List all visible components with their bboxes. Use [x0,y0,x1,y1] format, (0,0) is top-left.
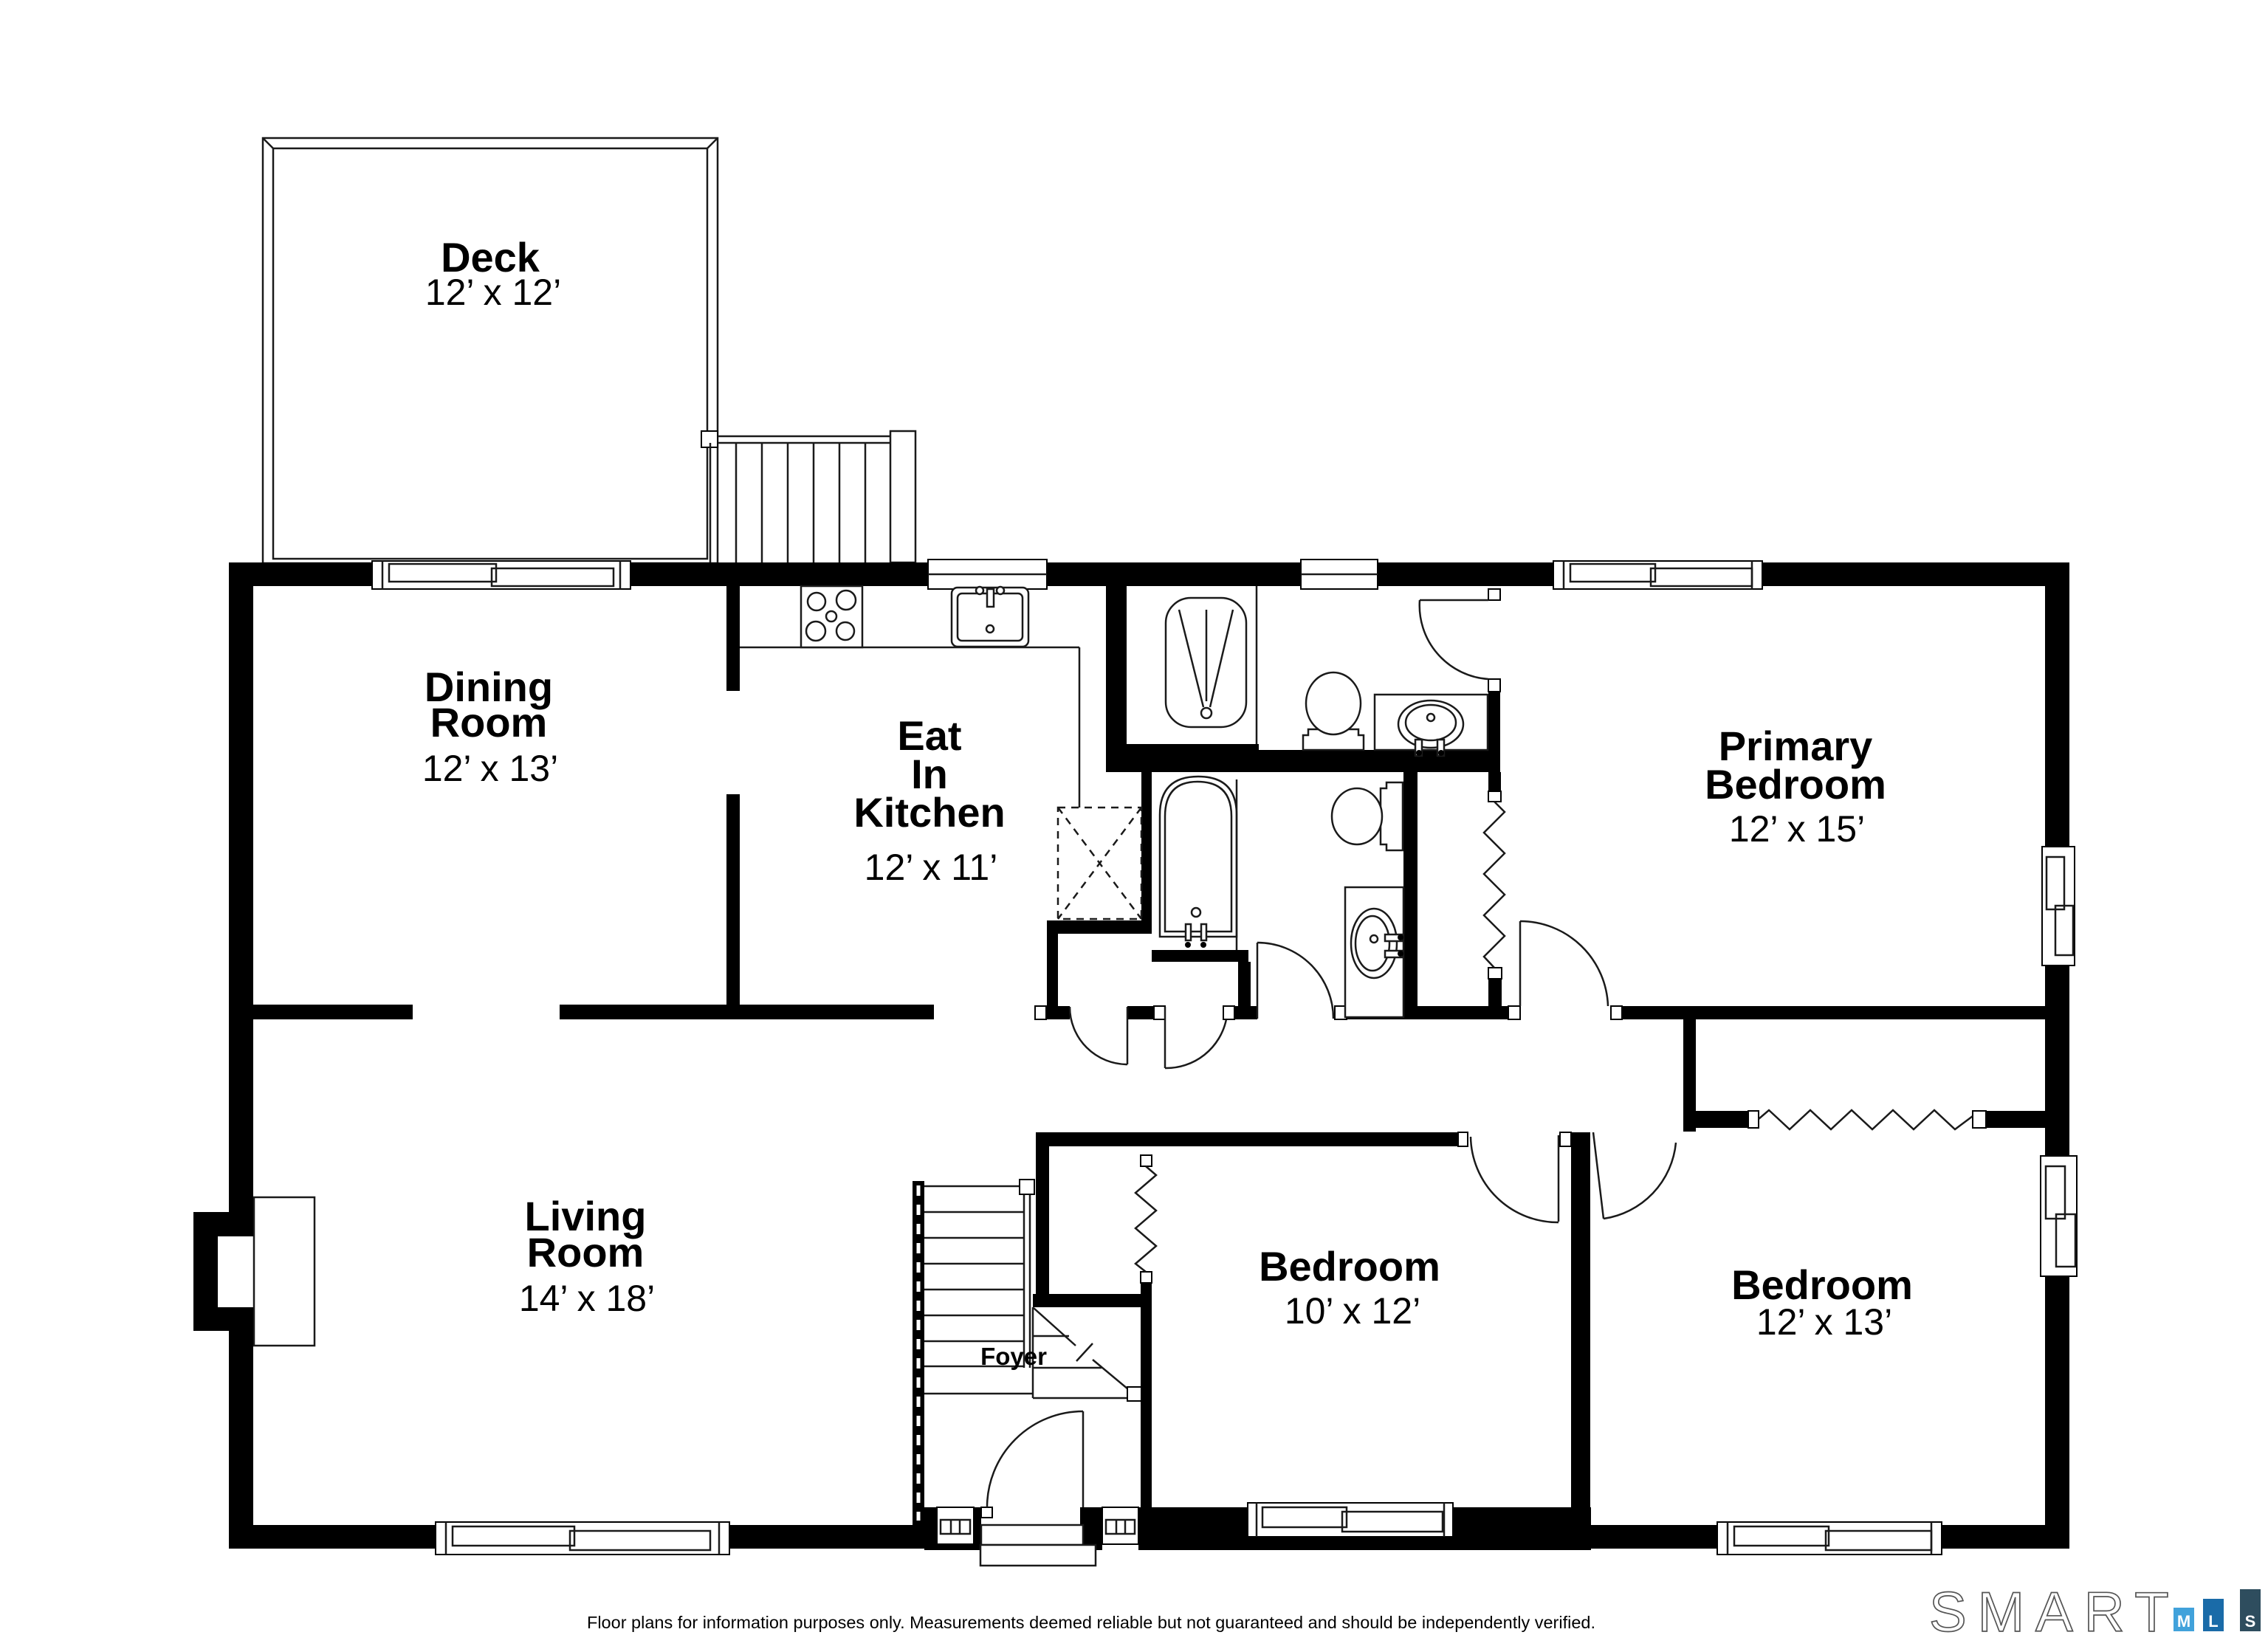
svg-text:S: S [2245,1612,2256,1631]
svg-text:SMART: SMART [1929,1581,2180,1644]
svg-text:Floor plans for information pu: Floor plans for information purposes onl… [587,1613,1595,1632]
svg-text:12’ x 13’: 12’ x 13’ [422,748,558,789]
svg-text:Foyer: Foyer [980,1343,1047,1370]
svg-text:12’ x 11’: 12’ x 11’ [865,847,998,888]
svg-text:Room: Room [430,699,548,746]
svg-text:12’ x 12’: 12’ x 12’ [425,272,561,313]
svg-text:M: M [2177,1612,2190,1631]
svg-text:14’ x 18’: 14’ x 18’ [519,1278,655,1319]
svg-text:12’ x 15’: 12’ x 15’ [1729,808,1865,850]
svg-text:12’ x 13’: 12’ x 13’ [1756,1301,1892,1343]
svg-text:Bedroom: Bedroom [1259,1243,1440,1290]
svg-text:10’ x 12’: 10’ x 12’ [1285,1290,1420,1332]
svg-text:Room: Room [527,1229,645,1276]
svg-text:Bedroom: Bedroom [1705,761,1886,808]
svg-text:L: L [2208,1612,2218,1631]
svg-text:Kitchen: Kitchen [853,789,1005,836]
